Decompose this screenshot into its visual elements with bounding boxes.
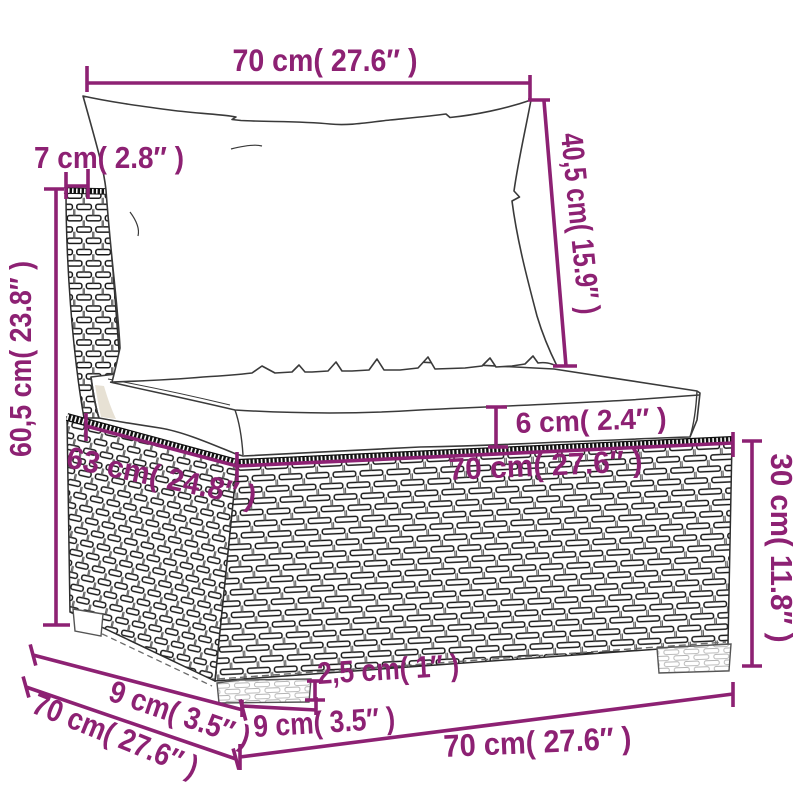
svg-text:30 cm( 11.8″ ): 30 cm( 11.8″ ) [764, 454, 799, 643]
svg-text:6 cm( 2.4″ ): 6 cm( 2.4″ ) [515, 403, 667, 440]
svg-text:60,5 cm( 23.8″ ): 60,5 cm( 23.8″ ) [3, 261, 38, 457]
svg-text:70 cm( 27.6″ ): 70 cm( 27.6″ ) [233, 42, 418, 78]
svg-text:7 cm( 2.8″ ): 7 cm( 2.8″ ) [34, 140, 184, 175]
